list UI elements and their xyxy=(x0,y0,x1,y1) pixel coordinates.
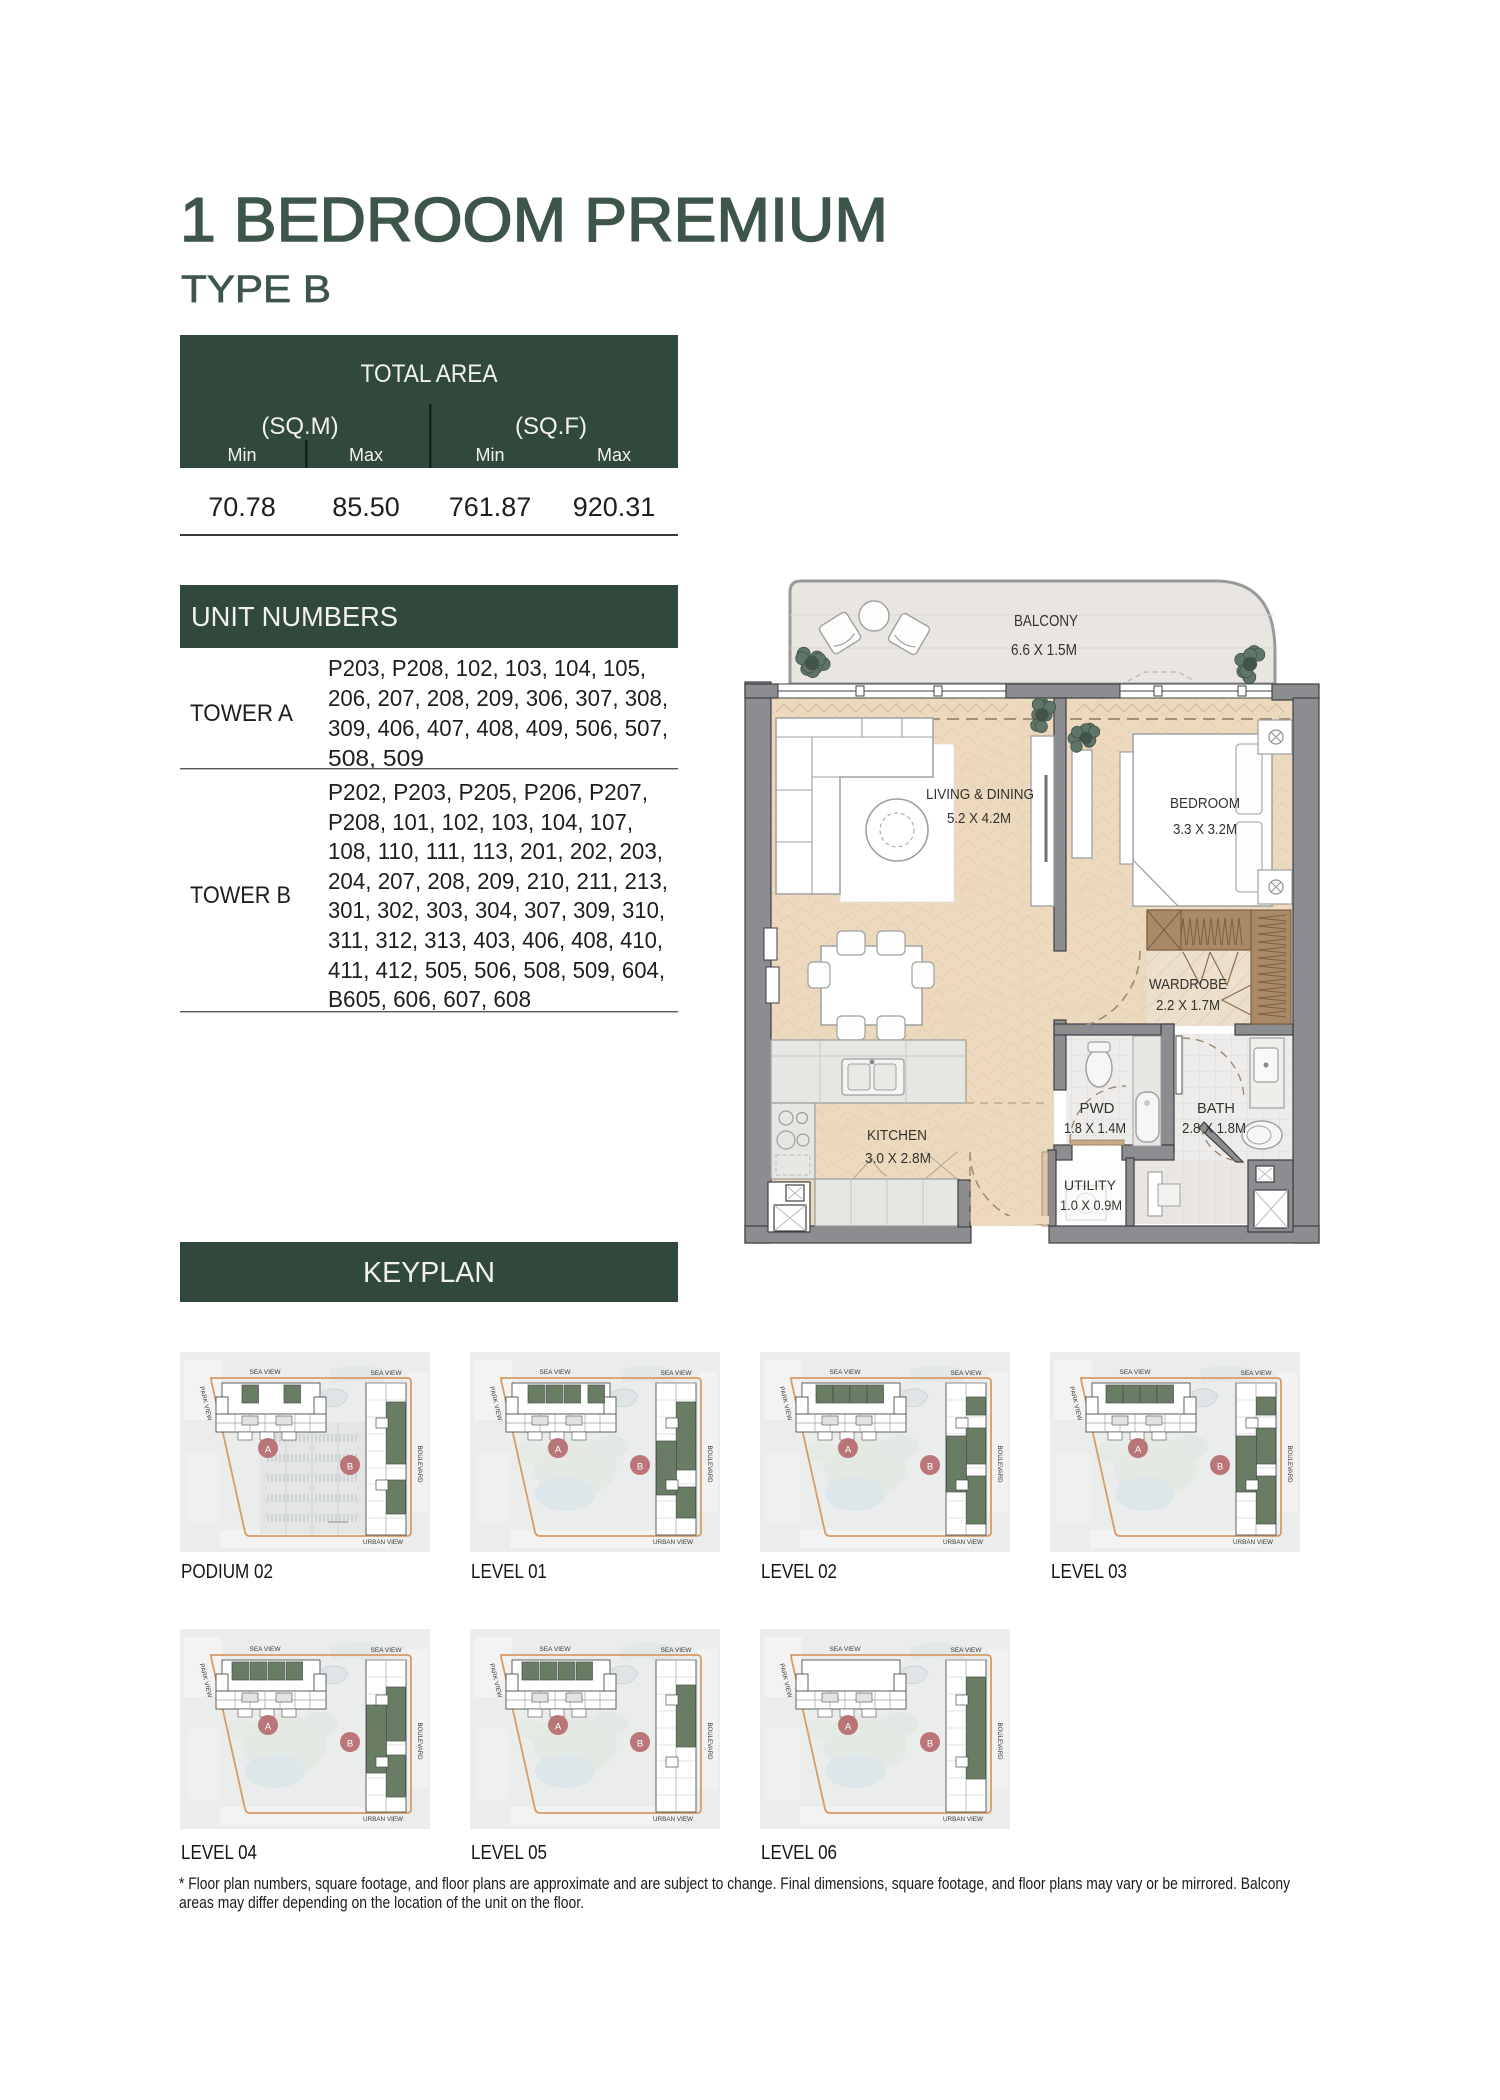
svg-text:LIVING & DINING: LIVING & DINING xyxy=(926,786,1034,803)
svg-text:508, 509: 508, 509 xyxy=(328,745,424,771)
svg-text:URBAN VIEW: URBAN VIEW xyxy=(653,1816,693,1823)
svg-text:70.78: 70.78 xyxy=(208,492,276,522)
svg-text:URBAN VIEW: URBAN VIEW xyxy=(1233,1539,1273,1546)
svg-text:UNIT NUMBERS: UNIT NUMBERS xyxy=(191,601,398,632)
svg-text:206, 207, 208, 209, 306, 307,: 206, 207, 208, 209, 306, 307, 308, xyxy=(328,685,668,711)
svg-text:108, 110, 111, 113, 201, 202,: 108, 110, 111, 113, 201, 202, 203, xyxy=(328,838,663,864)
svg-text:5.2 X 4.2M: 5.2 X 4.2M xyxy=(947,810,1011,827)
svg-text:KEYPLAN: KEYPLAN xyxy=(363,1257,495,1289)
svg-text:* Floor plan numbers, square f: * Floor plan numbers, square footage, an… xyxy=(179,1875,1291,1893)
svg-text:BOULEVARD: BOULEVARD xyxy=(416,1446,423,1484)
svg-text:85.50: 85.50 xyxy=(332,492,400,522)
svg-text:A: A xyxy=(555,1445,562,1456)
svg-text:A: A xyxy=(845,1445,852,1456)
svg-text:311, 312, 313, 403, 406, 408,: 311, 312, 313, 403, 406, 408, 410, xyxy=(328,927,663,953)
svg-text:A: A xyxy=(845,1722,852,1733)
svg-text:URBAN VIEW: URBAN VIEW xyxy=(363,1816,403,1823)
svg-text:P208, 101, 102, 103, 104, 107,: P208, 101, 102, 103, 104, 107, xyxy=(328,809,633,835)
svg-text:Max: Max xyxy=(349,445,383,465)
svg-text:BEDROOM: BEDROOM xyxy=(1170,795,1240,812)
svg-text:SEA VIEW: SEA VIEW xyxy=(1241,1370,1272,1377)
svg-text:LEVEL 04: LEVEL 04 xyxy=(181,1841,257,1864)
svg-text:B: B xyxy=(637,1462,643,1473)
svg-text:BOULEVARD: BOULEVARD xyxy=(996,1723,1003,1761)
svg-text:LEVEL 05: LEVEL 05 xyxy=(471,1841,547,1864)
svg-text:URBAN VIEW: URBAN VIEW xyxy=(363,1539,403,1546)
svg-text:PODIUM 02: PODIUM 02 xyxy=(181,1560,273,1583)
svg-text:SEA VIEW: SEA VIEW xyxy=(1120,1369,1151,1376)
svg-text:3.0 X 2.8M: 3.0 X 2.8M xyxy=(865,1150,931,1167)
svg-text:411, 412, 505, 506, 508, 509,: 411, 412, 505, 506, 508, 509, 604, xyxy=(328,957,665,983)
svg-text:P203, P208, 102, 103, 104, 105: P203, P208, 102, 103, 104, 105, xyxy=(328,655,646,681)
svg-text:204, 207, 208, 209, 210, 211,: 204, 207, 208, 209, 210, 211, 213, xyxy=(328,868,668,894)
svg-text:SEA VIEW: SEA VIEW xyxy=(371,1647,402,1654)
svg-text:BATH: BATH xyxy=(1197,1101,1235,1117)
svg-text:309, 406, 407, 408, 409, 506,: 309, 406, 407, 408, 409, 506, 507, xyxy=(328,715,668,741)
svg-text:BOULEVARD: BOULEVARD xyxy=(1286,1446,1293,1484)
svg-text:2.8 X 1.8M: 2.8 X 1.8M xyxy=(1182,1121,1246,1137)
svg-text:6.6 X 1.5M: 6.6 X 1.5M xyxy=(1011,642,1077,659)
svg-text:SEA VIEW: SEA VIEW xyxy=(661,1647,692,1654)
svg-text:SEA VIEW: SEA VIEW xyxy=(830,1646,861,1653)
svg-text:LEVEL 03: LEVEL 03 xyxy=(1051,1560,1127,1583)
svg-text:SEA VIEW: SEA VIEW xyxy=(661,1370,692,1377)
svg-text:LEVEL 02: LEVEL 02 xyxy=(761,1560,837,1583)
svg-text:TOWER A: TOWER A xyxy=(190,700,293,727)
svg-text:LEVEL 06: LEVEL 06 xyxy=(761,1841,837,1864)
svg-text:TOWER B: TOWER B xyxy=(190,882,291,909)
svg-text:Min: Min xyxy=(475,445,504,465)
svg-text:B: B xyxy=(637,1739,643,1750)
svg-text:B: B xyxy=(927,1462,933,1473)
svg-text:B: B xyxy=(347,1462,353,1473)
svg-text:SEA VIEW: SEA VIEW xyxy=(951,1647,982,1654)
svg-text:BOULEVARD: BOULEVARD xyxy=(706,1446,713,1484)
svg-text:B605, 606, 607, 608: B605, 606, 607, 608 xyxy=(328,986,531,1012)
svg-text:3.3 X 3.2M: 3.3 X 3.2M xyxy=(1173,821,1237,838)
svg-text:761.87: 761.87 xyxy=(449,492,532,522)
svg-text:TYPE B: TYPE B xyxy=(181,269,331,311)
svg-text:(SQ.M): (SQ.M) xyxy=(261,413,338,440)
svg-text:BALCONY: BALCONY xyxy=(1014,613,1078,630)
svg-text:BOULEVARD: BOULEVARD xyxy=(996,1446,1003,1484)
svg-text:B: B xyxy=(1217,1462,1223,1473)
svg-text:920.31: 920.31 xyxy=(573,492,656,522)
svg-text:URBAN VIEW: URBAN VIEW xyxy=(653,1539,693,1546)
svg-text:LEVEL 01: LEVEL 01 xyxy=(471,1560,547,1583)
svg-text:areas may differ depending on: areas may differ depending on the locati… xyxy=(179,1894,584,1912)
svg-text:URBAN VIEW: URBAN VIEW xyxy=(943,1816,983,1823)
svg-text:A: A xyxy=(1135,1445,1142,1456)
svg-text:UTILITY: UTILITY xyxy=(1064,1177,1117,1193)
svg-text:KITCHEN: KITCHEN xyxy=(867,1127,927,1144)
svg-text:A: A xyxy=(265,1722,272,1733)
svg-text:BOULEVARD: BOULEVARD xyxy=(416,1723,423,1761)
svg-text:Min: Min xyxy=(227,445,256,465)
svg-text:SEA VIEW: SEA VIEW xyxy=(250,1369,281,1376)
svg-text:A: A xyxy=(265,1445,272,1456)
svg-text:WARDROBE: WARDROBE xyxy=(1149,976,1227,993)
svg-text:TOTAL AREA: TOTAL AREA xyxy=(361,360,498,388)
svg-text:SEA VIEW: SEA VIEW xyxy=(371,1370,402,1377)
svg-text:SEA VIEW: SEA VIEW xyxy=(540,1369,571,1376)
svg-text:BOULEVARD: BOULEVARD xyxy=(706,1723,713,1761)
svg-text:PWD: PWD xyxy=(1080,1101,1115,1117)
svg-text:SEA VIEW: SEA VIEW xyxy=(250,1646,281,1653)
svg-text:A: A xyxy=(555,1722,562,1733)
svg-text:B: B xyxy=(927,1739,933,1750)
svg-text:SEA VIEW: SEA VIEW xyxy=(951,1370,982,1377)
svg-text:B: B xyxy=(347,1739,353,1750)
svg-text:SEA VIEW: SEA VIEW xyxy=(540,1646,571,1653)
svg-text:1.0 X 0.9M: 1.0 X 0.9M xyxy=(1060,1197,1122,1213)
svg-text:1.8 X 1.4M: 1.8 X 1.4M xyxy=(1064,1121,1126,1137)
svg-text:301, 302, 303, 304, 307, 309,: 301, 302, 303, 304, 307, 309, 310, xyxy=(328,897,665,923)
svg-text:SEA VIEW: SEA VIEW xyxy=(830,1369,861,1376)
svg-text:2.2 X 1.7M: 2.2 X 1.7M xyxy=(1156,997,1220,1014)
svg-text:URBAN VIEW: URBAN VIEW xyxy=(943,1539,983,1546)
svg-text:Max: Max xyxy=(597,445,631,465)
svg-text:(SQ.F): (SQ.F) xyxy=(515,413,587,440)
svg-text:P202, P203, P205, P206, P207,: P202, P203, P205, P206, P207, xyxy=(328,779,648,805)
svg-text:1 BEDROOM PREMIUM: 1 BEDROOM PREMIUM xyxy=(180,186,888,255)
